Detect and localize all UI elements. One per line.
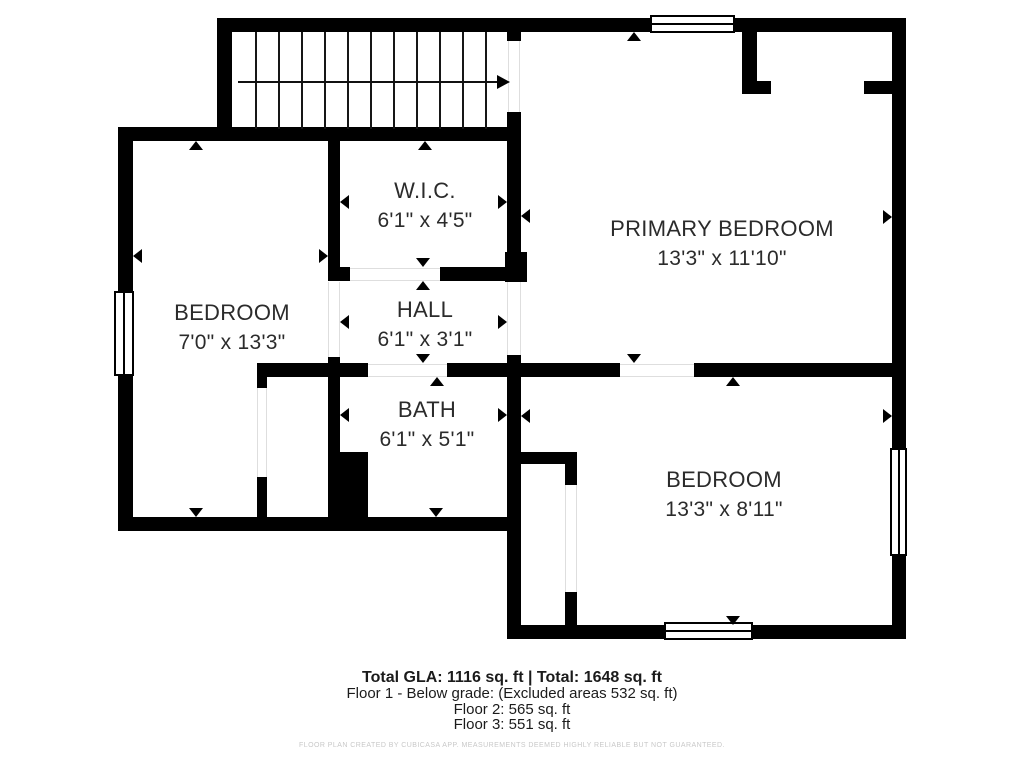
door-opening bbox=[350, 268, 440, 281]
dimension-arrow-icon bbox=[521, 209, 530, 223]
room-name: BEDROOM bbox=[174, 298, 290, 328]
dimension-arrow-icon bbox=[189, 508, 203, 517]
wall-segment bbox=[217, 18, 232, 141]
disclaimer-text: FLOOR PLAN CREATED BY CUBICASA APP. MEAS… bbox=[0, 742, 1024, 750]
floor-2-area: Floor 2: 565 sq. ft bbox=[0, 702, 1024, 718]
dimension-arrow-icon bbox=[726, 377, 740, 386]
room-label-bath: BATH 6'1" x 5'1" bbox=[379, 395, 474, 455]
door-opening bbox=[257, 388, 267, 477]
room-label-wic: W.I.C. 6'1" x 4'5" bbox=[377, 176, 472, 236]
wall-segment bbox=[440, 267, 507, 281]
room-name: HALL bbox=[377, 295, 472, 325]
wall-segment bbox=[864, 81, 892, 94]
dimension-arrow-icon bbox=[627, 354, 641, 363]
room-label-bedroom-bottom: BEDROOM 13'3" x 8'11" bbox=[665, 465, 783, 525]
room-dimensions: 13'3" x 8'11" bbox=[665, 495, 783, 525]
wall-segment bbox=[257, 363, 368, 377]
floor-plan-page: W.I.C. 6'1" x 4'5" PRIMARY BEDROOM 13'3"… bbox=[0, 0, 1024, 768]
room-name: PRIMARY BEDROOM bbox=[610, 214, 834, 244]
dimension-arrow-icon bbox=[340, 315, 349, 329]
wall-segment bbox=[507, 355, 521, 639]
dimension-arrow-icon bbox=[418, 141, 432, 150]
wall-segment bbox=[328, 141, 340, 267]
total-area-summary: Total GLA: 1116 sq. ft | Total: 1648 sq.… bbox=[0, 670, 1024, 686]
wall-segment bbox=[694, 363, 892, 377]
wall-segment bbox=[505, 252, 527, 282]
wall-segment bbox=[328, 452, 368, 518]
dimension-arrow-icon bbox=[883, 210, 892, 224]
room-dimensions: 6'1" x 4'5" bbox=[377, 206, 472, 236]
dimension-arrow-icon bbox=[429, 508, 443, 517]
door-opening bbox=[620, 364, 694, 377]
floor-3-area: Floor 3: 551 sq. ft bbox=[0, 717, 1024, 733]
room-dimensions: 7'0" x 13'3" bbox=[174, 328, 290, 358]
door-opening bbox=[565, 485, 577, 592]
floor-1-area: Floor 1 - Below grade: (Excluded areas 5… bbox=[0, 686, 1024, 702]
wall-segment bbox=[257, 477, 267, 517]
room-name: BEDROOM bbox=[665, 465, 783, 495]
dimension-arrow-icon bbox=[416, 354, 430, 363]
window bbox=[890, 448, 907, 556]
dimension-arrow-icon bbox=[416, 258, 430, 267]
dimension-arrow-icon bbox=[726, 616, 740, 625]
wall-segment bbox=[257, 363, 267, 388]
door-opening bbox=[368, 364, 447, 377]
room-label-hall: HALL 6'1" x 3'1" bbox=[377, 295, 472, 355]
dimension-arrow-icon bbox=[319, 249, 328, 263]
dimension-arrow-icon bbox=[883, 409, 892, 423]
room-name: W.I.C. bbox=[377, 176, 472, 206]
wall-segment bbox=[742, 81, 771, 94]
stair-direction-line bbox=[238, 81, 497, 83]
door-opening bbox=[507, 282, 521, 355]
door-opening bbox=[328, 282, 340, 357]
dimension-arrow-icon bbox=[416, 281, 430, 290]
room-label-bedroom-left: BEDROOM 7'0" x 13'3" bbox=[174, 298, 290, 358]
dimension-arrow-icon bbox=[498, 195, 507, 209]
wall-segment bbox=[217, 18, 906, 32]
room-label-primary-bedroom: PRIMARY BEDROOM 13'3" x 11'10" bbox=[610, 214, 834, 274]
summary-footer: Total GLA: 1116 sq. ft | Total: 1648 sq.… bbox=[0, 670, 1024, 750]
dimension-arrow-icon bbox=[498, 408, 507, 422]
dimension-arrow-icon bbox=[133, 249, 142, 263]
dimension-arrow-icon bbox=[340, 195, 349, 209]
dimension-arrow-icon bbox=[430, 377, 444, 386]
room-dimensions: 6'1" x 5'1" bbox=[379, 425, 474, 455]
stair-direction-arrow-icon bbox=[497, 75, 510, 89]
room-dimensions: 6'1" x 3'1" bbox=[377, 325, 472, 355]
room-dimensions: 13'3" x 11'10" bbox=[610, 244, 834, 274]
wall-segment bbox=[521, 363, 620, 377]
wall-segment bbox=[565, 452, 577, 485]
window bbox=[114, 291, 134, 376]
wall-segment bbox=[328, 267, 350, 281]
wall-segment bbox=[507, 32, 521, 41]
wall-segment bbox=[118, 127, 510, 141]
floor-plan: W.I.C. 6'1" x 4'5" PRIMARY BEDROOM 13'3"… bbox=[0, 0, 1024, 768]
wall-segment bbox=[742, 32, 757, 82]
window bbox=[650, 15, 735, 33]
dimension-arrow-icon bbox=[340, 408, 349, 422]
room-name: BATH bbox=[379, 395, 474, 425]
dimension-arrow-icon bbox=[498, 315, 507, 329]
dimension-arrow-icon bbox=[627, 32, 641, 41]
wall-segment bbox=[118, 517, 520, 531]
wall-segment bbox=[507, 112, 521, 252]
dimension-arrow-icon bbox=[189, 141, 203, 150]
dimension-arrow-icon bbox=[521, 409, 530, 423]
